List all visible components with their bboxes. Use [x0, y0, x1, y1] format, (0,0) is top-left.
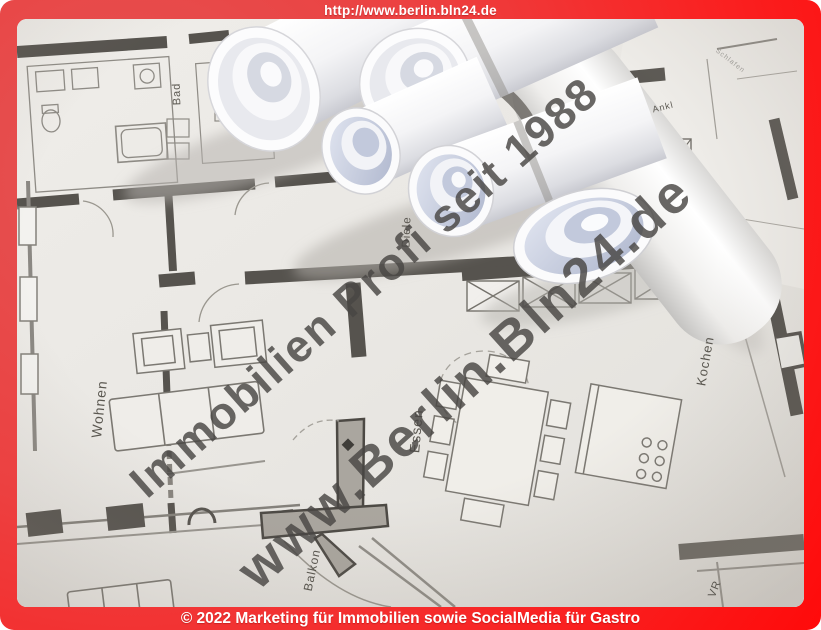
- footer-copyright-text: © 2022 Marketing für Immobilien sowie So…: [181, 610, 640, 628]
- header-url-bar: http://www.berlin.bln24.de: [0, 0, 821, 20]
- footer-copyright-bar: © 2022 Marketing für Immobilien sowie So…: [0, 607, 821, 630]
- photo-vignette: [17, 19, 804, 607]
- blueprint-photo: Bad Wohnen Diele Essen Kochen Balkon Ank…: [17, 19, 804, 607]
- header-url-text: http://www.berlin.bln24.de: [324, 3, 497, 18]
- watermarked-photo-frame: http://www.berlin.bln24.de: [0, 0, 821, 630]
- floorplan-illustration: [17, 19, 804, 607]
- room-label-bad: Bad: [171, 83, 184, 106]
